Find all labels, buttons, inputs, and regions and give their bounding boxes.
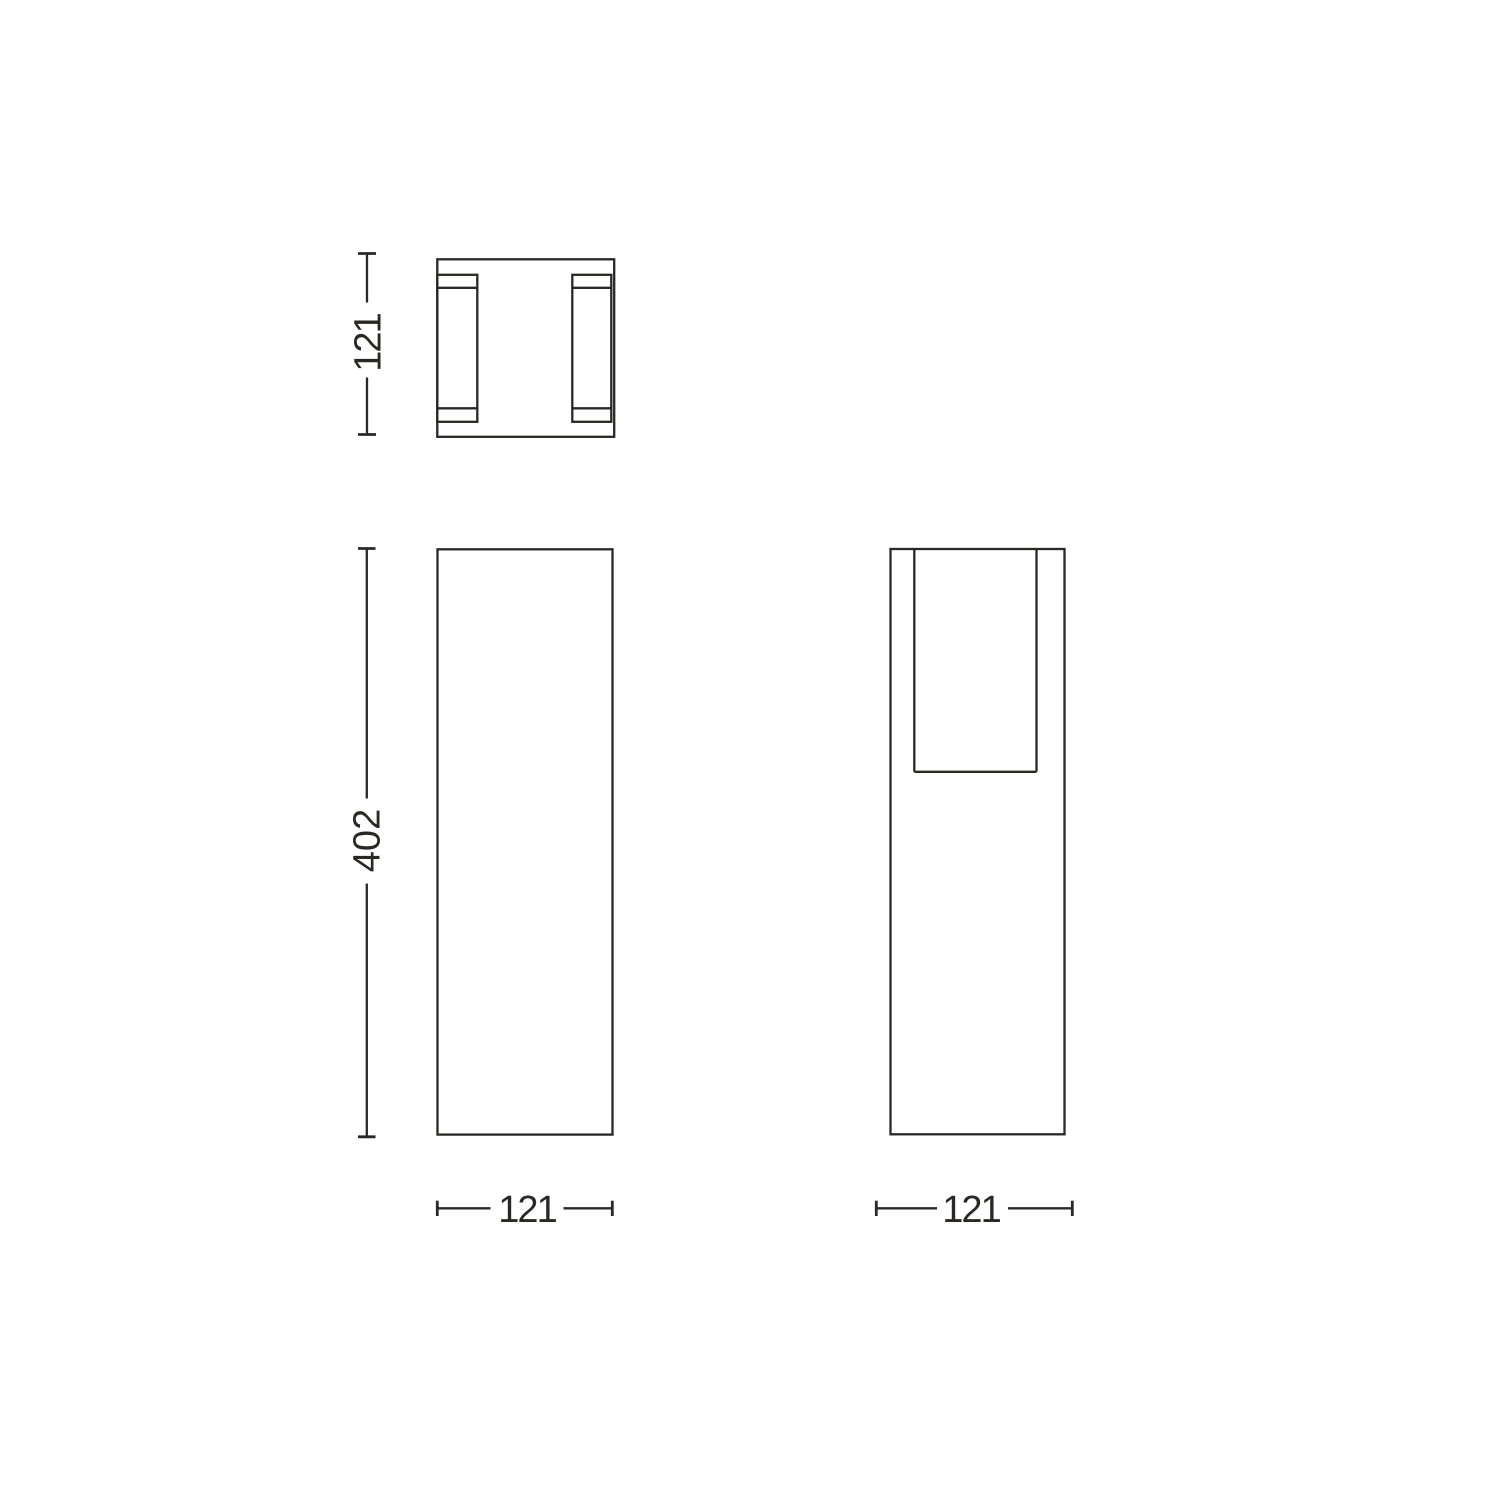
svg-text:121: 121 [498,1189,556,1231]
svg-text:121: 121 [347,313,389,371]
svg-text:121: 121 [942,1189,1000,1231]
svg-text:402: 402 [346,809,388,872]
